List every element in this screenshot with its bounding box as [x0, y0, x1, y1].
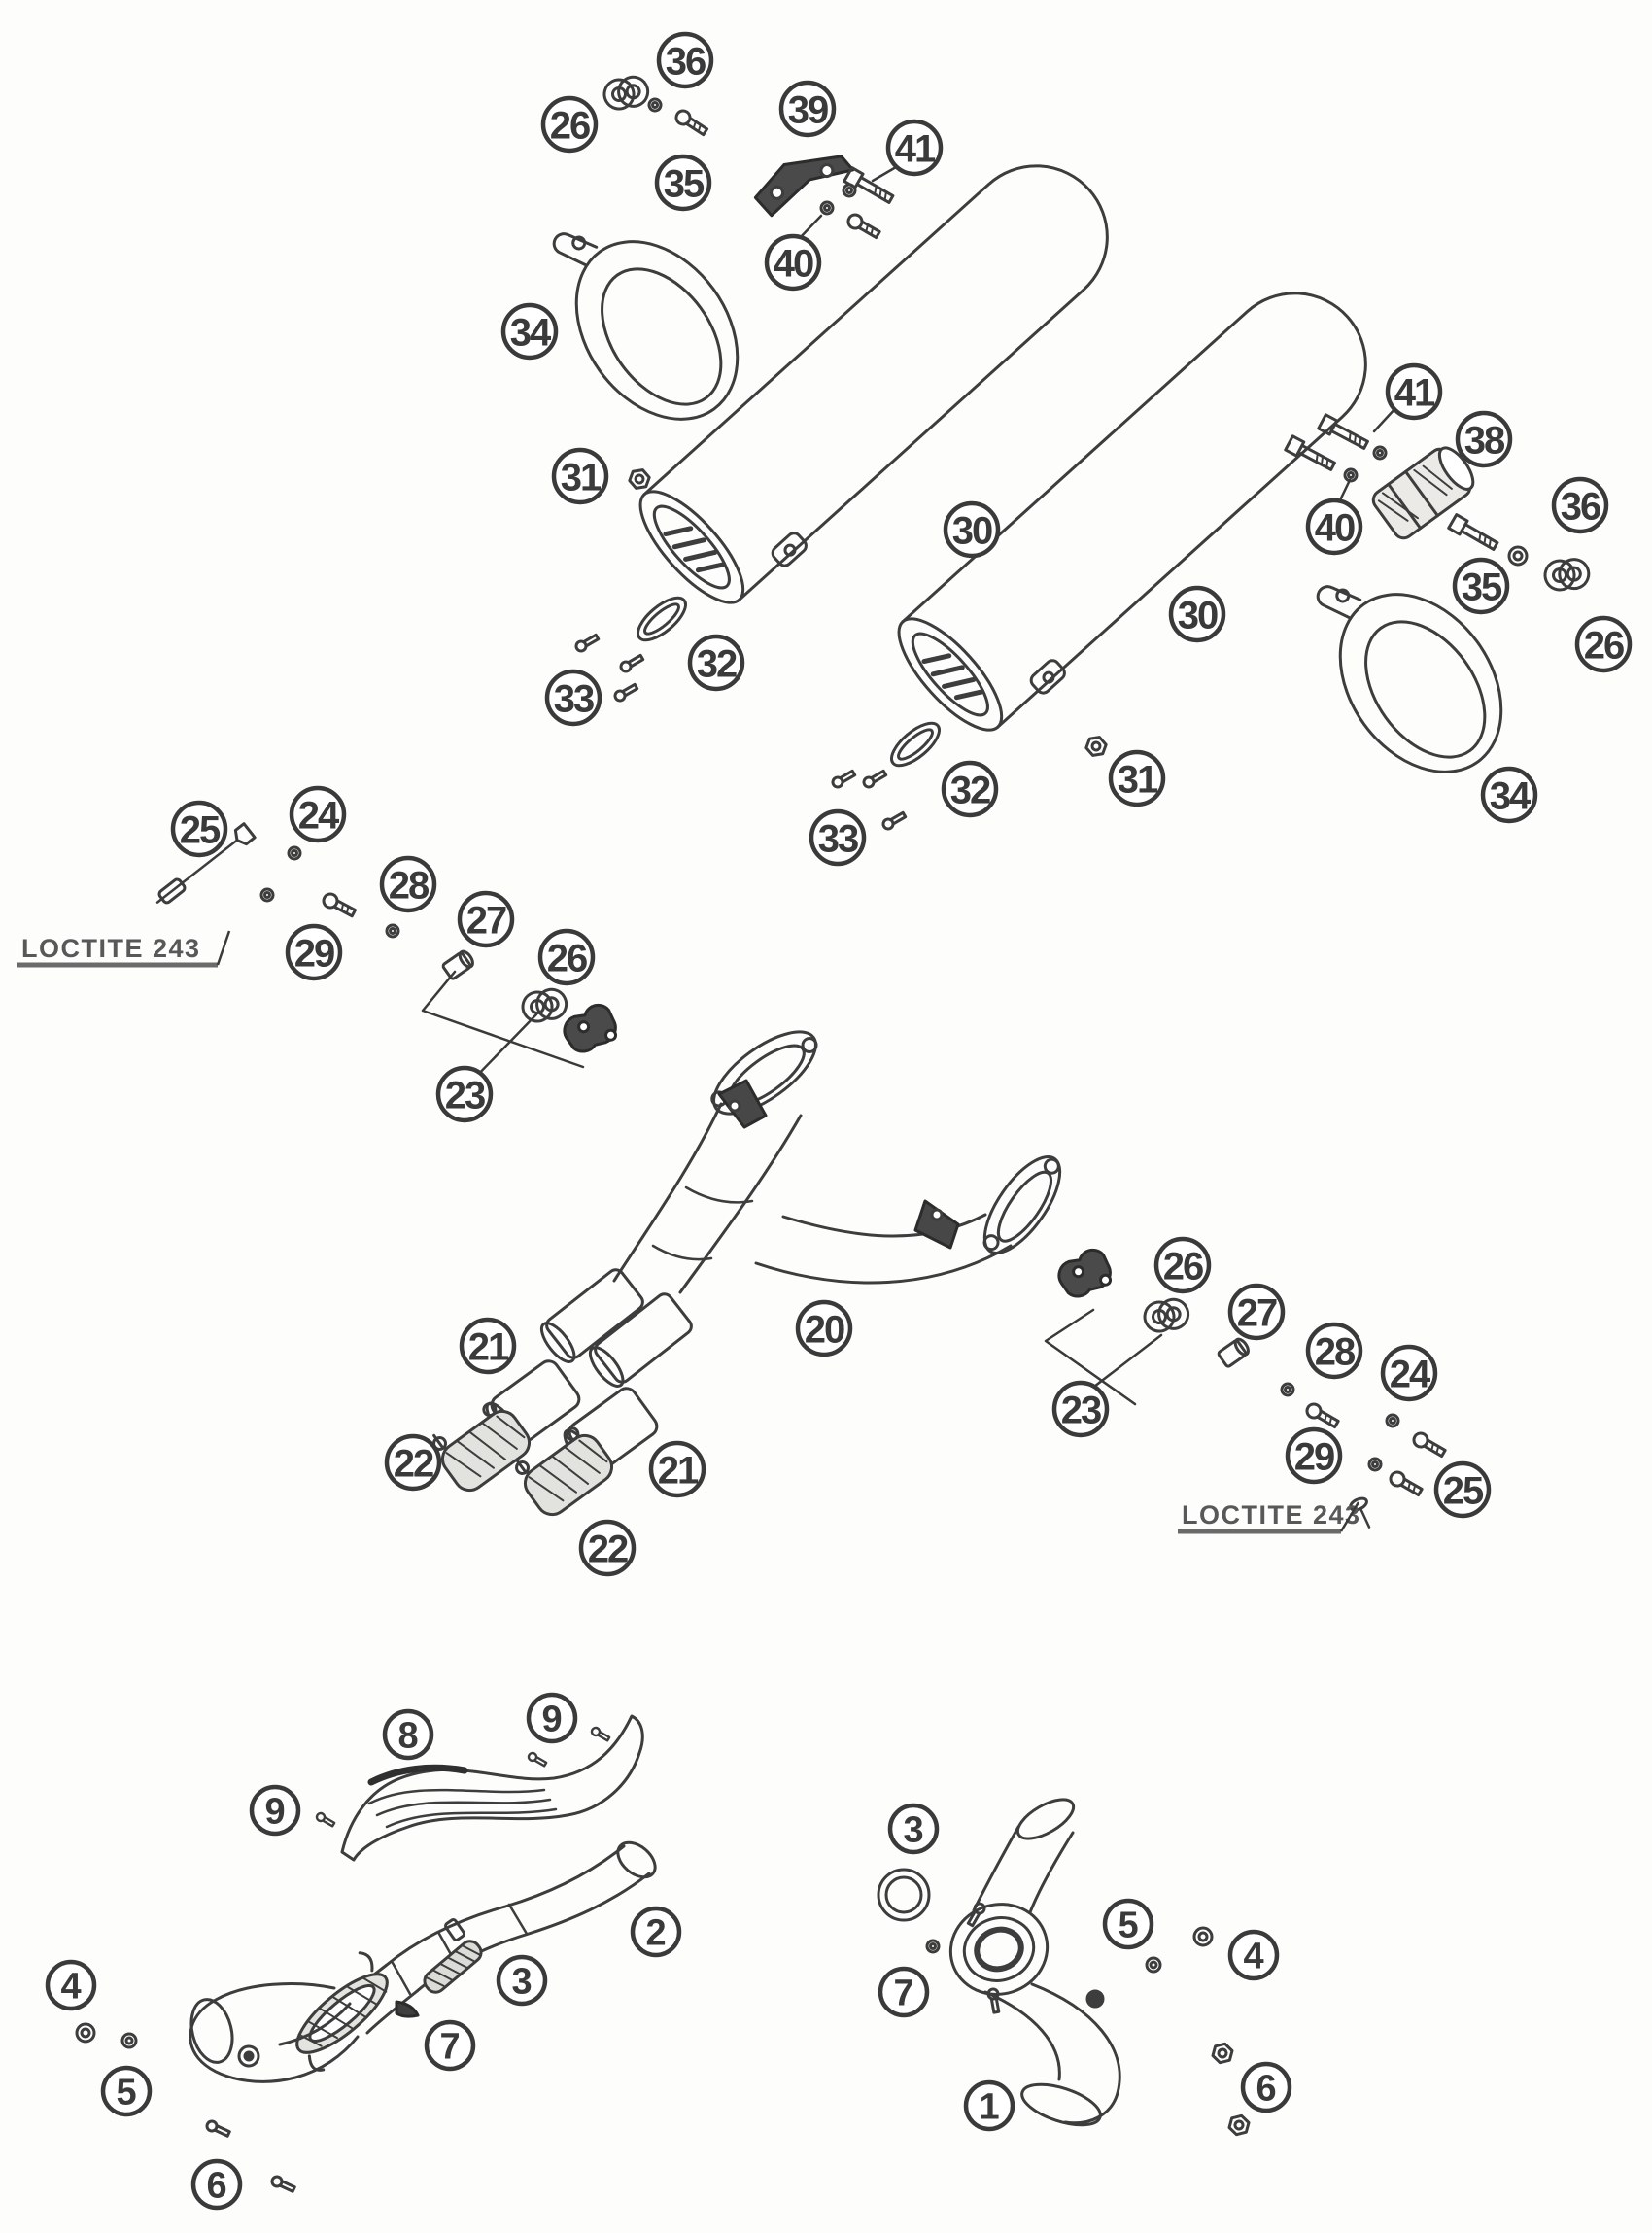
callout-41[interactable]: 41	[1388, 365, 1440, 418]
svg-text:41: 41	[895, 127, 936, 170]
part-front-header-pipe	[332, 1836, 662, 2033]
callout-7[interactable]: 7	[427, 2022, 473, 2069]
screw-part	[322, 892, 358, 919]
screw-part	[528, 1752, 548, 1769]
callout-27[interactable]: 27	[460, 893, 512, 945]
svg-text:4: 4	[60, 1967, 81, 2008]
part-oring-right	[885, 716, 946, 773]
leader-line-41	[873, 167, 896, 181]
washer-part	[1509, 547, 1527, 565]
svg-text:34: 34	[1490, 774, 1532, 817]
svg-text:3: 3	[511, 1962, 532, 2003]
svg-text:41: 41	[1394, 371, 1435, 414]
svg-text:21: 21	[468, 1325, 509, 1368]
washer-part	[927, 1941, 939, 1952]
screw-part	[673, 108, 708, 137]
svg-text:32: 32	[697, 642, 737, 685]
screw-part	[862, 769, 887, 789]
svg-text:9: 9	[541, 1700, 562, 1740]
svg-text:2: 2	[645, 1913, 666, 1954]
screw-part	[845, 212, 880, 240]
svg-text:25: 25	[180, 808, 221, 851]
svg-text:36: 36	[666, 40, 706, 83]
callout-34[interactable]: 34	[1483, 769, 1535, 821]
callout-40[interactable]: 40	[1308, 500, 1360, 553]
svg-text:5: 5	[1118, 1906, 1138, 1946]
callout-5[interactable]: 5	[1105, 1901, 1152, 1947]
leader-line-23-right-2	[1090, 1335, 1161, 1390]
callout-25[interactable]: 25	[1436, 1463, 1489, 1516]
svg-text:31: 31	[561, 456, 602, 498]
callout-29[interactable]: 29	[288, 926, 340, 979]
svg-text:6: 6	[206, 2166, 226, 2207]
washer-part	[821, 202, 833, 214]
screw-part	[316, 1812, 336, 1829]
callout-21[interactable]: 21	[462, 1320, 514, 1372]
screw-part	[205, 2119, 230, 2138]
washer-pair-part	[1140, 1290, 1194, 1341]
svg-text:26: 26	[1163, 1245, 1203, 1288]
parts-diagram-page: 3626394135403431303233304138364035263432…	[0, 0, 1652, 2233]
svg-text:33: 33	[554, 677, 594, 720]
callout-38[interactable]: 38	[1458, 413, 1510, 465]
spacer-bushing-part	[1218, 1337, 1251, 1367]
svg-text:29: 29	[294, 932, 334, 975]
svg-text:23: 23	[445, 1074, 485, 1116]
callout-21[interactable]: 21	[651, 1443, 704, 1495]
callout-layer: 3626394135403431303233304138364035263432…	[17, 34, 1630, 2208]
washer-part	[1194, 1928, 1212, 1945]
svg-text:25: 25	[1443, 1469, 1484, 1512]
svg-text:26: 26	[547, 937, 587, 979]
callout-31[interactable]: 31	[554, 450, 606, 502]
callout-33[interactable]: 33	[547, 671, 600, 724]
callout-6[interactable]: 6	[193, 2161, 240, 2208]
washer-part	[77, 2024, 94, 2042]
svg-text:9: 9	[264, 1792, 285, 1833]
svg-text:24: 24	[298, 794, 340, 837]
callout-26[interactable]: 26	[1156, 1239, 1209, 1291]
callout-9[interactable]: 9	[252, 1787, 298, 1834]
callout-20[interactable]: 20	[798, 1302, 850, 1355]
bolt-part	[1286, 436, 1337, 473]
callout-4[interactable]: 4	[48, 1962, 94, 2009]
svg-text:LOCTITE 243: LOCTITE 243	[1182, 1500, 1361, 1529]
svg-text:7: 7	[439, 2027, 460, 2068]
callout-5[interactable]: 5	[103, 2068, 150, 2114]
washer-part	[289, 847, 300, 859]
screw-part	[1388, 1469, 1423, 1497]
svg-text:28: 28	[1315, 1330, 1356, 1373]
washer-part	[387, 925, 398, 937]
svg-text:32: 32	[950, 769, 990, 811]
svg-text:26: 26	[1584, 624, 1624, 667]
ring-part	[1147, 1958, 1160, 1972]
nut-part	[1084, 735, 1108, 759]
bolt-part	[1449, 515, 1499, 553]
svg-text:24: 24	[1390, 1353, 1431, 1395]
callout-30[interactable]: 30	[1171, 588, 1223, 640]
callout-30[interactable]: 30	[946, 503, 998, 556]
screw-part	[1304, 1401, 1339, 1429]
callout-22[interactable]: 22	[387, 1436, 439, 1489]
callout-6[interactable]: 6	[1243, 2064, 1290, 2111]
callout-32[interactable]: 32	[690, 636, 742, 689]
loctite-annotation: LOCTITE 243	[1178, 1500, 1361, 1531]
svg-text:LOCTITE 243: LOCTITE 243	[21, 934, 201, 963]
svg-text:35: 35	[1462, 566, 1502, 608]
svg-text:31: 31	[1118, 758, 1158, 801]
nut-part	[1212, 2042, 1234, 2065]
part-hanger-bracket-top	[748, 137, 854, 218]
callout-34[interactable]: 34	[503, 305, 556, 358]
svg-text:29: 29	[1294, 1435, 1334, 1478]
screw-part	[591, 1727, 611, 1743]
callout-25[interactable]: 25	[173, 803, 225, 855]
svg-text:33: 33	[818, 817, 858, 860]
washer-part	[1345, 469, 1357, 481]
svg-text:34: 34	[510, 311, 552, 354]
callout-22[interactable]: 22	[581, 1522, 634, 1574]
svg-text:4: 4	[1243, 1937, 1263, 1977]
svg-text:27: 27	[1237, 1291, 1277, 1334]
screw-part	[270, 2175, 295, 2193]
callout-28[interactable]: 28	[382, 858, 434, 910]
callout-31[interactable]: 31	[1111, 752, 1163, 805]
washer-pair-part	[518, 980, 572, 1031]
callout-28[interactable]: 28	[1308, 1324, 1360, 1377]
svg-text:7: 7	[893, 1974, 913, 2014]
callout-27[interactable]: 27	[1230, 1286, 1283, 1338]
callout-3[interactable]: 3	[890, 1805, 937, 1852]
svg-text:21: 21	[658, 1449, 699, 1492]
svg-text:1: 1	[979, 2087, 999, 2128]
svg-text:26: 26	[550, 104, 590, 147]
spacer-bushing-part	[442, 949, 475, 979]
callout-36[interactable]: 36	[659, 34, 711, 86]
rubber-damper-part	[559, 998, 624, 1061]
callout-39[interactable]: 39	[781, 83, 834, 135]
svg-text:8: 8	[397, 1716, 418, 1757]
screw-part	[619, 653, 644, 673]
svg-text:40: 40	[1315, 506, 1355, 549]
screw-part	[574, 633, 600, 653]
washer-part	[1282, 1384, 1293, 1395]
svg-text:5: 5	[116, 2073, 136, 2113]
callout-1[interactable]: 1	[966, 2082, 1013, 2129]
svg-text:3: 3	[903, 1810, 923, 1851]
callout-4[interactable]: 4	[1230, 1932, 1277, 1978]
nut-part	[1228, 2113, 1251, 2137]
washer-part	[1369, 1459, 1381, 1470]
svg-text:30: 30	[1178, 594, 1218, 636]
callout-33[interactable]: 33	[811, 811, 864, 864]
svg-text:38: 38	[1464, 419, 1505, 462]
callout-24[interactable]: 24	[292, 788, 344, 841]
screw-part	[613, 682, 638, 703]
callout-35[interactable]: 35	[1455, 560, 1507, 612]
callout-35[interactable]: 35	[657, 156, 709, 209]
part-clamp-silencer-left	[521, 181, 771, 451]
callout-36[interactable]: 36	[1554, 479, 1606, 532]
callout-26[interactable]: 26	[540, 931, 593, 983]
svg-text:20: 20	[805, 1308, 844, 1351]
callout-8[interactable]: 8	[385, 1711, 431, 1758]
callout-32[interactable]: 32	[944, 763, 996, 815]
callout-26[interactable]: 26	[1577, 618, 1630, 670]
ring-part	[122, 2034, 136, 2047]
callout-2[interactable]: 2	[633, 1908, 679, 1955]
svg-text:23: 23	[1061, 1389, 1101, 1431]
washer-pair-part	[600, 68, 654, 119]
svg-text:36: 36	[1561, 485, 1600, 528]
callout-40[interactable]: 40	[767, 236, 819, 289]
callout-24[interactable]: 24	[1383, 1347, 1435, 1399]
washer-part	[1374, 447, 1386, 459]
svg-text:30: 30	[952, 509, 992, 552]
bolt-part	[1319, 415, 1370, 452]
screw-part	[1411, 1430, 1446, 1459]
callout-9[interactable]: 9	[529, 1695, 575, 1741]
washer-part	[261, 889, 273, 901]
svg-text:40: 40	[774, 242, 813, 285]
svg-text:35: 35	[664, 162, 705, 205]
part-silencer-left	[625, 137, 1141, 623]
gasket-spring-part	[421, 1938, 485, 1997]
part-header-pipe-rear	[939, 1792, 1119, 2133]
callout-3[interactable]: 3	[499, 1957, 545, 2004]
pipe-clamp-part	[427, 1391, 535, 1496]
washer-pair-part	[1540, 550, 1594, 599]
loctite-annotation: LOCTITE 243	[17, 931, 229, 965]
exhaust-diagram-canvas: 3626394135403431303233304138364035263432…	[0, 0, 1652, 2233]
callout-41[interactable]: 41	[888, 121, 941, 174]
svg-text:22: 22	[588, 1528, 628, 1570]
part-gasket-oring	[878, 1870, 929, 1920]
callout-26[interactable]: 26	[543, 98, 596, 151]
svg-text:28: 28	[389, 864, 430, 907]
screw-part	[831, 769, 856, 789]
callout-29[interactable]: 29	[1288, 1429, 1340, 1482]
nut-part	[628, 467, 651, 492]
screw-part	[881, 810, 907, 831]
leader-line-23-left	[423, 972, 583, 1067]
svg-text:6: 6	[1256, 2069, 1276, 2110]
rubber-damper-part	[1053, 1243, 1119, 1306]
washer-part	[1387, 1415, 1398, 1426]
part-oring-left	[632, 591, 693, 647]
callout-7[interactable]: 7	[880, 1969, 927, 2015]
callout-23[interactable]: 23	[1054, 1383, 1107, 1435]
svg-text:22: 22	[394, 1442, 433, 1485]
svg-text:39: 39	[788, 88, 828, 131]
washer-part	[647, 97, 663, 113]
wedge-part	[396, 2002, 418, 2016]
callout-23[interactable]: 23	[438, 1068, 491, 1120]
svg-text:27: 27	[466, 899, 506, 942]
